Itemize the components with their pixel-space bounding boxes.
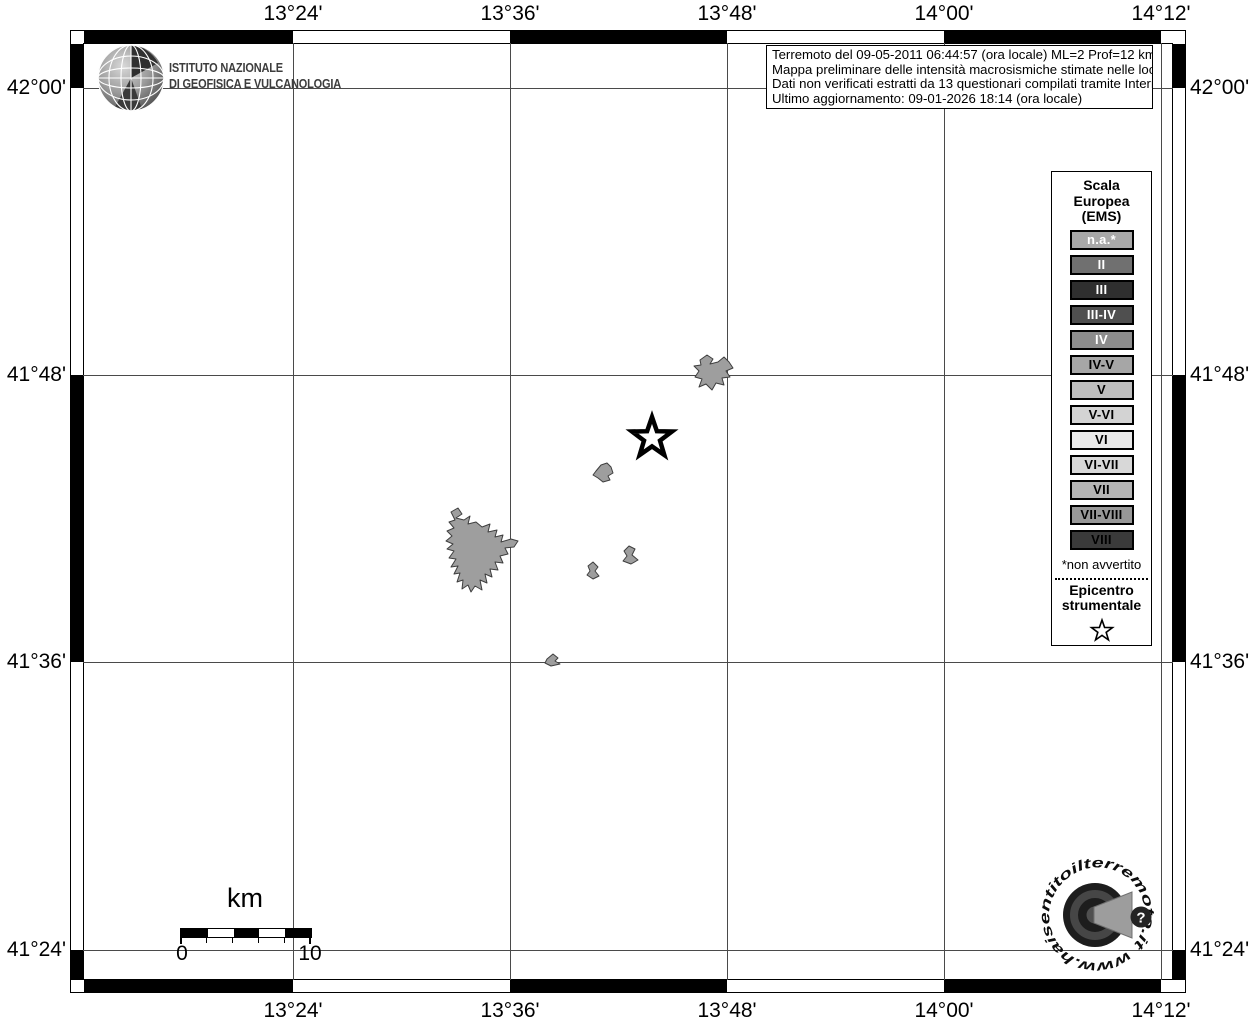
scalebar-tick [206,937,207,943]
axis-label-right-0: 42°00' [1190,76,1254,100]
axis-label-bottom-3: 14°00' [884,999,1004,1023]
axis-label-bottom-0: 13°24' [233,999,353,1023]
ems-legend: Scala Europea (EMS) n.a.* II III III-IV … [1051,171,1152,646]
ems-class-iii: III [1070,280,1134,300]
map-inner-frame [83,43,1173,980]
axis-label-left-0: 42°00' [0,76,66,100]
ems-class-vi: VI [1070,430,1134,450]
epicenter-star-icon [1089,617,1115,643]
axis-label-right-2: 41°36' [1190,650,1254,674]
ems-class-iv-v: IV-V [1070,355,1134,375]
gridline-lon-13-48 [727,43,728,980]
ems-class-ii: II [1070,255,1134,275]
scalebar-segment [285,929,311,937]
ems-class-iv: IV [1070,330,1134,350]
frame-band-segment [71,950,83,980]
ems-class-vii-viii: VII-VIII [1070,505,1134,525]
axis-label-top-3: 14°00' [884,2,1004,26]
scalebar-tick [232,937,233,943]
frame-band-segment [1173,44,1185,88]
scalebar-segment [182,929,208,937]
gridline-lon-14-12 [1161,43,1162,980]
legend-epicenter-line2: strumentale [1052,598,1151,614]
info-line-description: Mappa preliminare delle intensità macros… [772,63,1147,78]
ingv-logo-line1: ISTITUTO NAZIONALE [169,61,341,77]
axis-label-top-0: 13°24' [233,2,353,26]
legend-epicenter-line1: Epicentro [1052,583,1151,599]
axis-label-top-1: 13°36' [450,2,570,26]
ems-class-v-vi: V-VI [1070,405,1134,425]
info-line-source: Dati non verificati estratti da 13 quest… [772,77,1147,92]
scalebar-min-label: 0 [170,942,194,966]
gridline-lat-41-24 [83,950,1173,951]
frame-band-segment [71,375,83,662]
ems-class-iii-iv: III-IV [1070,305,1134,325]
axis-label-top-4: 14°12' [1101,2,1221,26]
macroseismic-map-page: ISTITUTO NAZIONALE DI GEOFISICA E VULCAN… [0,0,1254,1024]
gridline-lat-41-48 [83,375,1173,376]
gridline-lon-13-24 [293,43,294,980]
watermark-question-mark: ? [1136,910,1145,927]
legend-title-line2: Europea [1052,194,1151,210]
ems-class-na: n.a.* [1070,230,1134,250]
legend-title: Scala Europea (EMS) [1052,172,1151,225]
axis-label-left-2: 41°36' [0,650,66,674]
ems-class-viii: VIII [1070,530,1134,550]
ems-class-v: V [1070,380,1134,400]
legend-footnote: *non avvertito [1052,557,1151,572]
frame-band-segment [510,980,727,992]
ingv-logo-text: ISTITUTO NAZIONALE DI GEOFISICA E VULCAN… [169,61,341,92]
frame-band-segment [510,31,727,43]
legend-divider [1055,578,1148,580]
axis-label-left-3: 41°24' [0,938,66,962]
frame-band-segment [71,44,83,88]
ingv-globe-logo [97,44,165,112]
legend-title-line1: Scala [1052,178,1151,194]
gridline-lat-41-36 [83,662,1173,663]
gridline-lon-13-36 [510,43,511,980]
scalebar-segment [259,929,285,937]
info-line-event: Terremoto del 09-05-2011 06:44:57 (ora l… [772,48,1147,63]
scalebar-tick [258,937,259,943]
axis-label-top-2: 13°48' [667,2,787,26]
earthquake-info-box: Terremoto del 09-05-2011 06:44:57 (ora l… [766,45,1153,109]
axis-label-bottom-1: 13°36' [450,999,570,1023]
scalebar-segment [234,929,260,937]
gridline-lon-14-00 [944,43,945,980]
ingv-logo-line2: DI GEOFISICA E VULCANOLOGIA [169,77,341,93]
axis-label-left-1: 41°48' [0,363,66,387]
scalebar-max-label: 10 [295,942,325,966]
legend-epicenter-label: Epicentro strumentale [1052,583,1151,614]
frame-band-segment [84,31,293,43]
axis-label-bottom-4: 14°12' [1101,999,1221,1023]
haisentitoilterremoto-watermark: www.haisentitoilterremoto.it ? [1030,848,1164,982]
ems-class-vii: VII [1070,480,1134,500]
axis-label-right-1: 41°48' [1190,363,1254,387]
scalebar-tick [284,937,285,943]
scalebar-segment [208,929,234,937]
frame-band-segment [84,980,293,992]
scalebar-unit-label: km [205,886,285,910]
info-line-updated: Ultimo aggiornamento: 09-01-2026 18:14 (… [772,92,1147,107]
ems-class-vi-vii: VI-VII [1070,455,1134,475]
frame-band-segment [944,31,1161,43]
axis-label-bottom-2: 13°48' [667,999,787,1023]
frame-band-segment [1173,950,1185,980]
frame-band-segment [1173,375,1185,662]
legend-title-line3: (EMS) [1052,209,1151,225]
scalebar [181,928,312,938]
axis-label-right-3: 41°24' [1190,938,1254,962]
